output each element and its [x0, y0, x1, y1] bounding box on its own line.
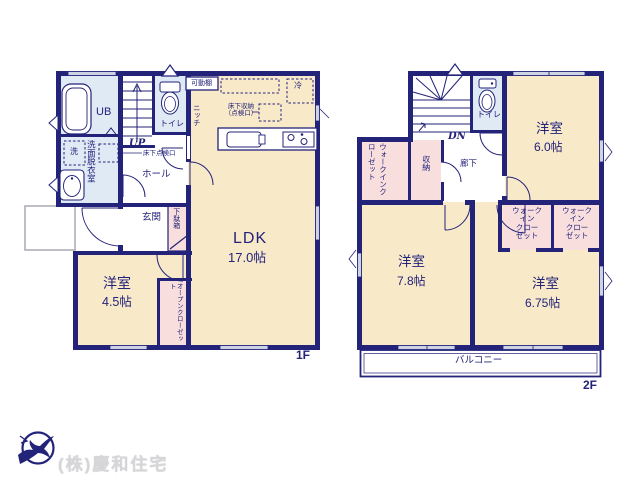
bathtub-icon — [62, 84, 91, 134]
kitchen-sink-icon — [227, 132, 261, 147]
label-washer: 洗 — [70, 148, 78, 157]
label-getabako: 下駄箱 — [172, 208, 180, 234]
label-yukashita: 床下収納 （点検口） — [224, 103, 258, 117]
label-bedroom45-name: 洋室 — [103, 276, 131, 291]
label-tenkenko: 床下点検口 — [143, 150, 176, 157]
label-up: UP — [129, 138, 145, 149]
kitchen-counter-icon — [218, 128, 317, 150]
label-rei: 冷 — [294, 82, 302, 91]
label-ldk-name: LDK — [233, 230, 267, 248]
stairs-down-icon — [413, 76, 470, 132]
label-bedroom675-size: 6.75帖 — [525, 297, 560, 310]
room-bedroom-60 — [505, 75, 600, 200]
label-ldk-size: 17.0帖 — [228, 251, 266, 265]
label-hall: ホール — [142, 170, 171, 180]
label-shuno: 収納 — [421, 155, 430, 177]
label-floor1-tag: 1F — [296, 349, 310, 362]
label-wic-b: ウォーク イン クロー ゼット — [555, 207, 599, 240]
label-niche: ニッチ — [192, 104, 200, 132]
company-logo-icon — [18, 433, 54, 465]
toilet-icon-1f — [160, 82, 180, 114]
company-name: (株)慶和住宅 — [58, 450, 168, 475]
label-open-closet: オープンクローゼット — [168, 283, 182, 343]
label-bedroom45-size: 4.5帖 — [102, 296, 132, 310]
label-senmen: 洗面脱衣室 — [86, 140, 95, 202]
niche-notch — [187, 136, 190, 159]
label-wic-a: ウォーク イン クロー ゼット — [504, 207, 550, 240]
label-bedroom60-size: 6.0帖 — [534, 141, 563, 154]
label-genkan: 玄関 — [142, 213, 161, 223]
washbasin-icon — [60, 170, 84, 200]
floorplan-drawing — [0, 0, 640, 480]
label-wic-left: ウォークインクローゼット — [366, 143, 389, 199]
label-dn: DN — [448, 131, 466, 142]
stairs-up-icon — [123, 82, 152, 142]
label-bedroom78-size: 7.8帖 — [397, 275, 426, 288]
label-rouka: 廊下 — [460, 159, 477, 168]
label-toilet-1f: トイレ — [160, 120, 184, 129]
toilet-icon-2f — [479, 79, 496, 112]
label-balcony: バルコニー — [455, 356, 502, 366]
stove-icon — [283, 132, 314, 147]
vent-triangle-1f — [162, 65, 178, 76]
vent-triangle-2f — [447, 64, 463, 75]
label-bedroom60-name: 洋室 — [536, 122, 563, 137]
label-bedroom675-name: 洋室 — [532, 277, 559, 292]
floorplan-canvas: UB 洗面脱衣室 洗 トイレ UP 床下点検口 ホール 可動棚 ニッチ 床下収納… — [0, 0, 640, 480]
porch-step — [25, 206, 75, 250]
label-ub: UB — [96, 106, 111, 118]
label-kadodana: 可動棚 — [191, 80, 212, 88]
label-floor2-tag: 2F — [583, 379, 597, 392]
label-toilet-2f: トイレ — [477, 111, 501, 120]
label-bedroom78-name: 洋室 — [398, 255, 425, 270]
